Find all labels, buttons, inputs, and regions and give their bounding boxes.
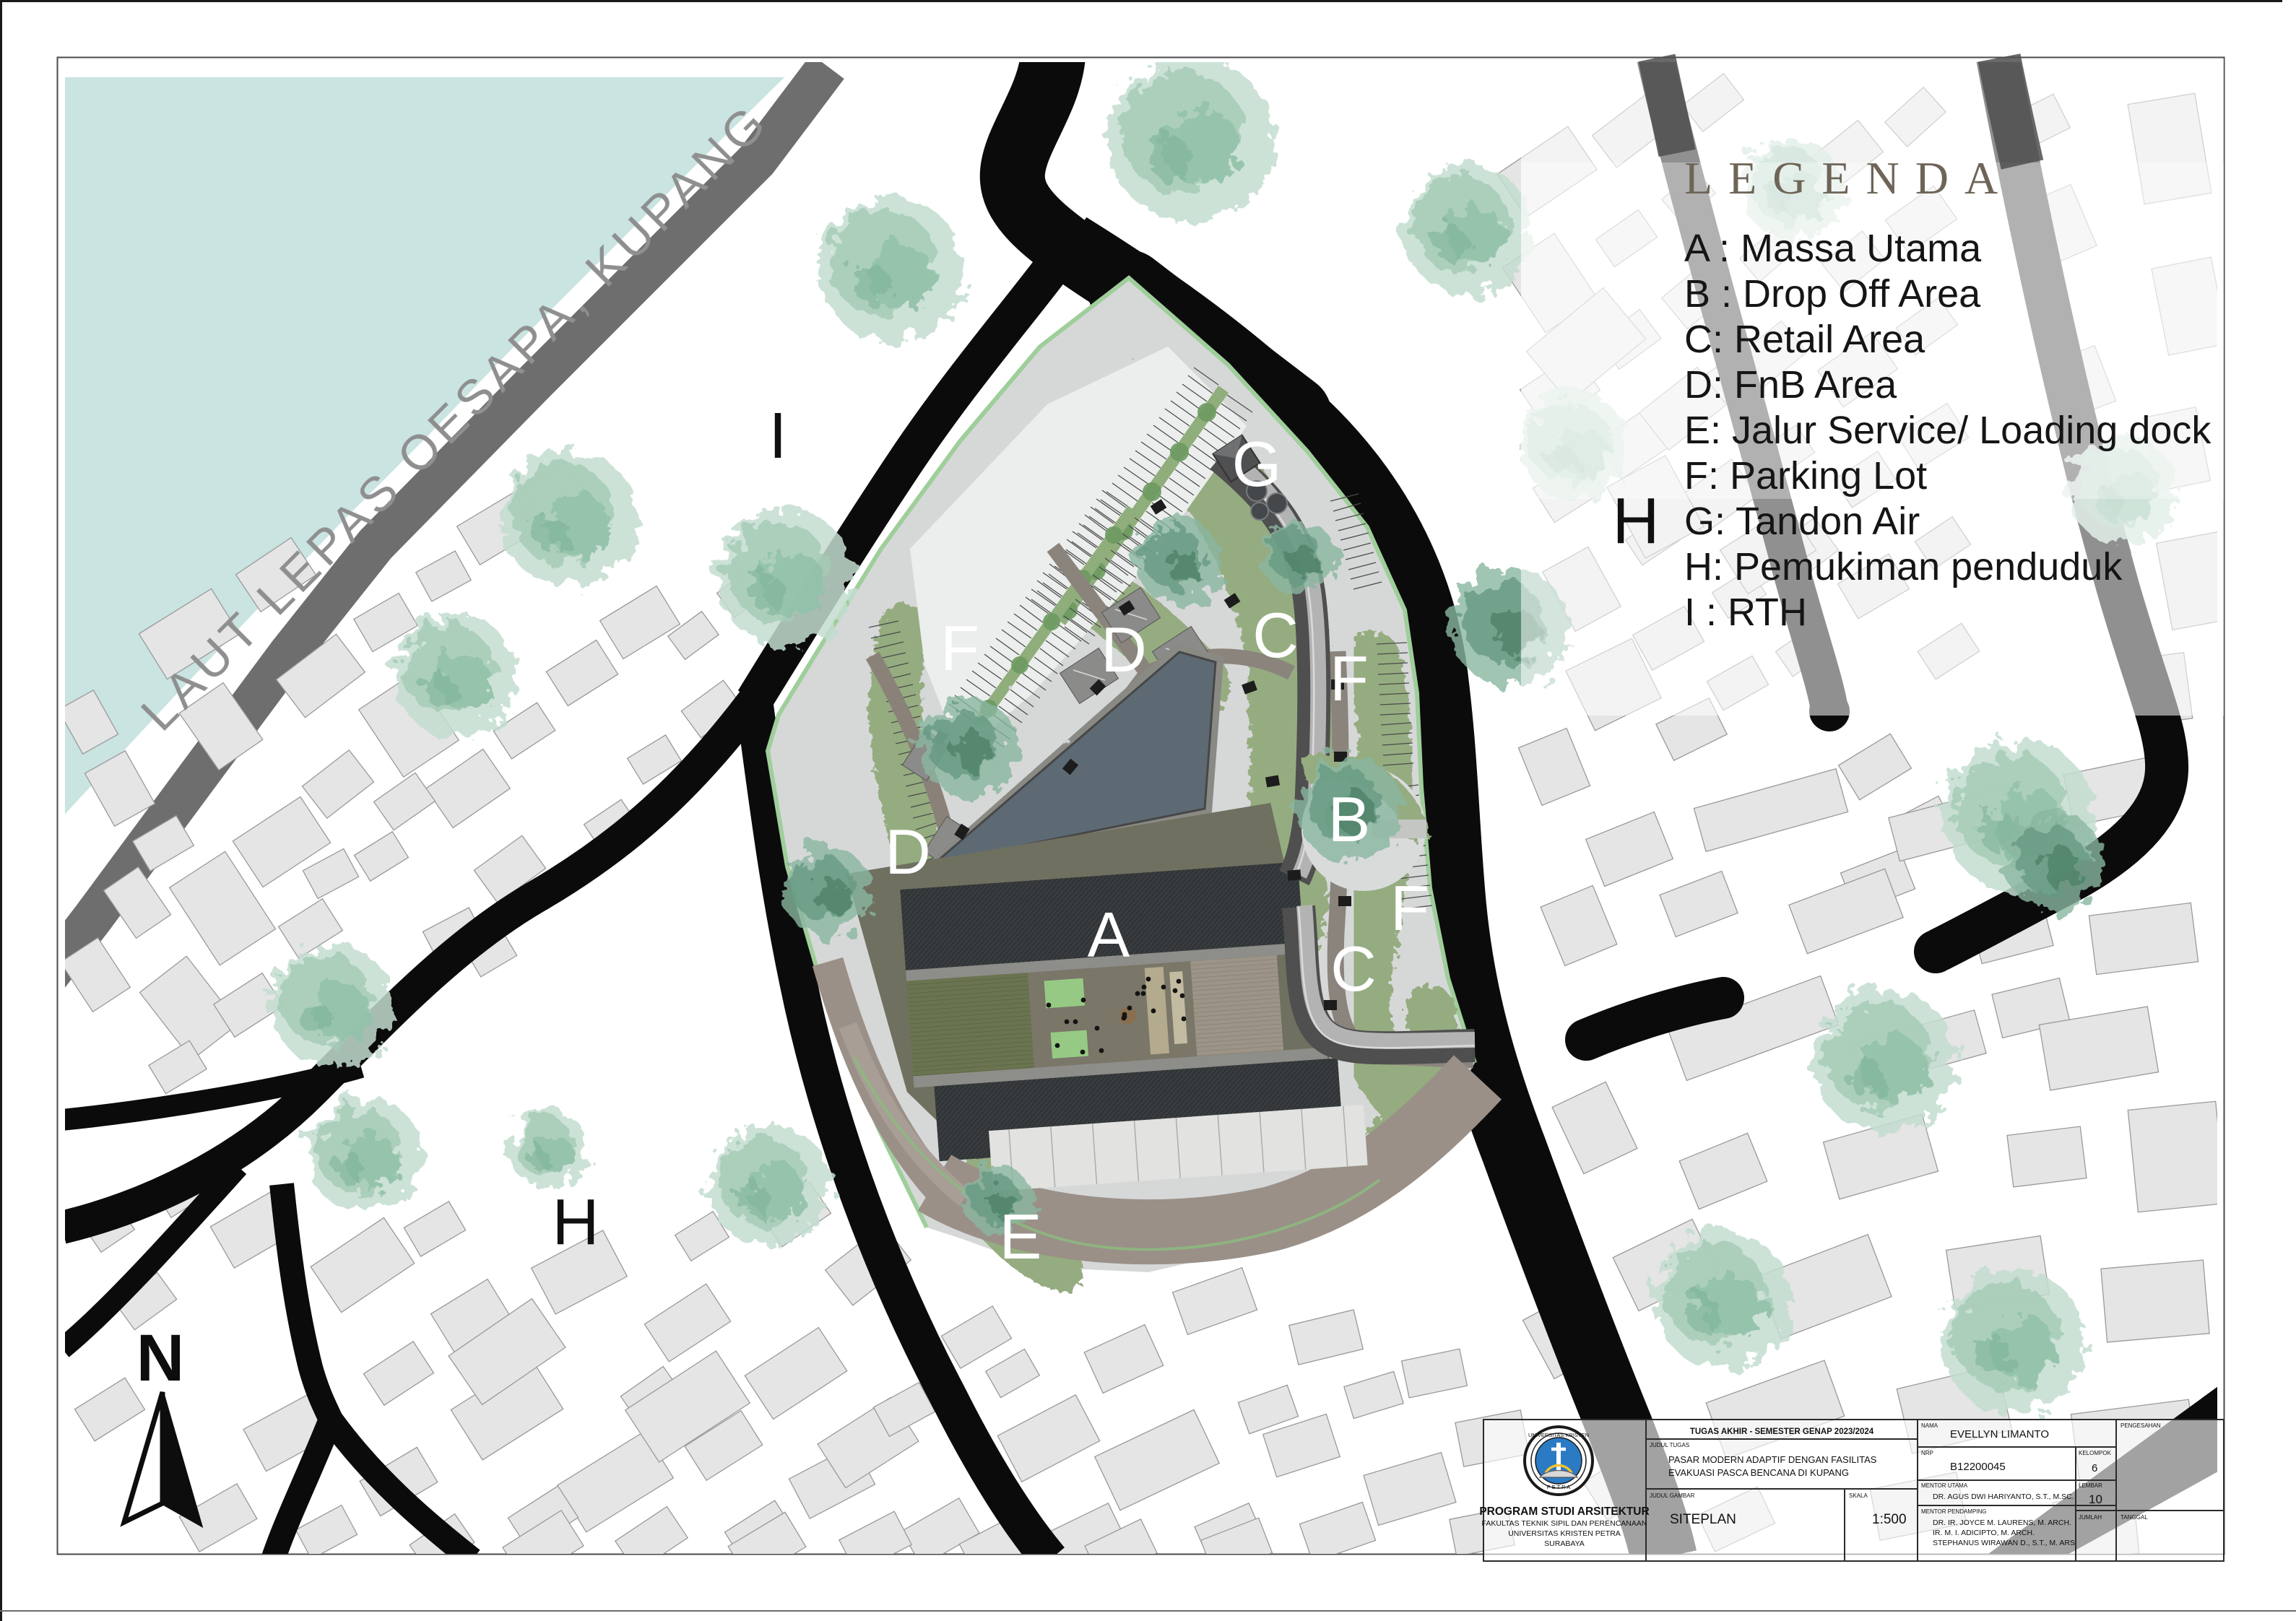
- svg-text:B : Drop Off Area: B : Drop Off Area: [1684, 272, 1981, 316]
- svg-text:LEMBAR: LEMBAR: [2079, 1482, 2102, 1489]
- svg-text:D: D: [1101, 614, 1147, 685]
- svg-text:PROGRAM STUDI ARSITEKTUR: PROGRAM STUDI ARSITEKTUR: [1479, 1505, 1649, 1518]
- svg-text:PENGESAHAN: PENGESAHAN: [2120, 1422, 2161, 1429]
- svg-text:JUDUL TUGAS: JUDUL TUGAS: [1650, 1442, 1689, 1448]
- svg-text:C: Retail Area: C: Retail Area: [1684, 318, 1925, 361]
- svg-text:D: D: [885, 816, 931, 887]
- svg-text:MENTOR PENDAMPING: MENTOR PENDAMPING: [1921, 1508, 1987, 1515]
- svg-text:EVAKUASI PASCA BENCANA DI KUPA: EVAKUASI PASCA BENCANA DI KUPANG: [1668, 1467, 1849, 1478]
- svg-text:UNIVERSITAS KRISTEN PETRA: UNIVERSITAS KRISTEN PETRA: [1508, 1529, 1621, 1538]
- svg-text:F: F: [940, 612, 979, 684]
- svg-text:E: Jalur Service/ Loading dock: E: Jalur Service/ Loading dock: [1684, 409, 2211, 452]
- svg-text:EVELLYN LIMANTO: EVELLYN LIMANTO: [1950, 1428, 2049, 1440]
- svg-text:NAMA: NAMA: [1921, 1422, 1938, 1429]
- svg-text:A : Massa Utama: A : Massa Utama: [1684, 227, 1982, 270]
- svg-text:E: E: [1000, 1201, 1042, 1272]
- svg-text:IR. M. I. ADICIPTO, M. ARCH.: IR. M. I. ADICIPTO, M. ARCH.: [1933, 1529, 2035, 1537]
- svg-text:JUDUL GAMBAR: JUDUL GAMBAR: [1650, 1492, 1695, 1499]
- svg-text:G: Tandon Air: G: Tandon Air: [1684, 500, 1920, 543]
- svg-text:1:500: 1:500: [1872, 1512, 1907, 1527]
- svg-text:F: F: [1390, 872, 1429, 944]
- svg-text:SURABAYA: SURABAYA: [1544, 1539, 1585, 1548]
- svg-text:B: B: [1328, 783, 1371, 855]
- svg-text:DR. IR. JOYCE M. LAURENS, M. A: DR. IR. JOYCE M. LAURENS, M. ARCH.: [1933, 1518, 2071, 1527]
- svg-text:P E T R A: P E T R A: [1547, 1484, 1571, 1490]
- svg-text:PASAR MODERN ADAPTIF DENGAN FA: PASAR MODERN ADAPTIF DENGAN FASILITAS: [1668, 1454, 1877, 1465]
- svg-text:I : RTH: I : RTH: [1684, 591, 1807, 634]
- svg-text:FAKULTAS TEKNIK SIPIL DAN PERE: FAKULTAS TEKNIK SIPIL DAN PERENCANAAN: [1482, 1519, 1647, 1528]
- svg-text:JUMLAH: JUMLAH: [2079, 1514, 2102, 1521]
- svg-text:SITEPLAN: SITEPLAN: [1670, 1512, 1736, 1527]
- svg-text:NRP: NRP: [1921, 1450, 1933, 1456]
- svg-text:B12200045: B12200045: [1950, 1461, 2006, 1473]
- svg-text:UNIVERSITAS KRISTEN: UNIVERSITAS KRISTEN: [1528, 1432, 1589, 1438]
- svg-text:D: FnB Area: D: FnB Area: [1684, 363, 1897, 407]
- svg-text:MENTOR UTAMA: MENTOR UTAMA: [1921, 1482, 1968, 1489]
- svg-text:DR. AGUS DWI HARIYANTO, S.T.,: DR. AGUS DWI HARIYANTO, S.T., M.SC.: [1933, 1492, 2074, 1501]
- svg-text:F: Parking Lot: F: Parking Lot: [1684, 454, 1927, 497]
- svg-text:A: A: [1088, 899, 1130, 970]
- svg-text:10: 10: [2089, 1492, 2102, 1506]
- svg-text:F: F: [1330, 643, 1369, 714]
- svg-text:H: H: [553, 1186, 599, 1259]
- svg-text:LEGENDA: LEGENDA: [1684, 152, 2014, 204]
- svg-text:G: G: [1232, 428, 1281, 500]
- svg-text:I: I: [768, 400, 787, 472]
- svg-text:TUGAS AKHIR - SEMESTER GENAP 2: TUGAS AKHIR - SEMESTER GENAP 2023/2024: [1690, 1427, 1874, 1436]
- svg-text:C: C: [1252, 599, 1299, 671]
- svg-text:TANGGAL: TANGGAL: [2120, 1514, 2148, 1521]
- svg-text:C: C: [1330, 933, 1377, 1004]
- svg-text:KELOMPOK: KELOMPOK: [2079, 1450, 2112, 1456]
- svg-text:SKALA: SKALA: [1849, 1492, 1868, 1499]
- svg-text:H: Pemukiman penduduk: H: Pemukiman penduduk: [1684, 545, 2123, 588]
- svg-text:N: N: [137, 1321, 184, 1395]
- svg-text:STEPHANUS WIRAWAN D., S.T., M.: STEPHANUS WIRAWAN D., S.T., M. ARS: [1933, 1539, 2075, 1547]
- svg-text:6: 6: [2092, 1462, 2097, 1474]
- svg-text:H: H: [1613, 485, 1660, 557]
